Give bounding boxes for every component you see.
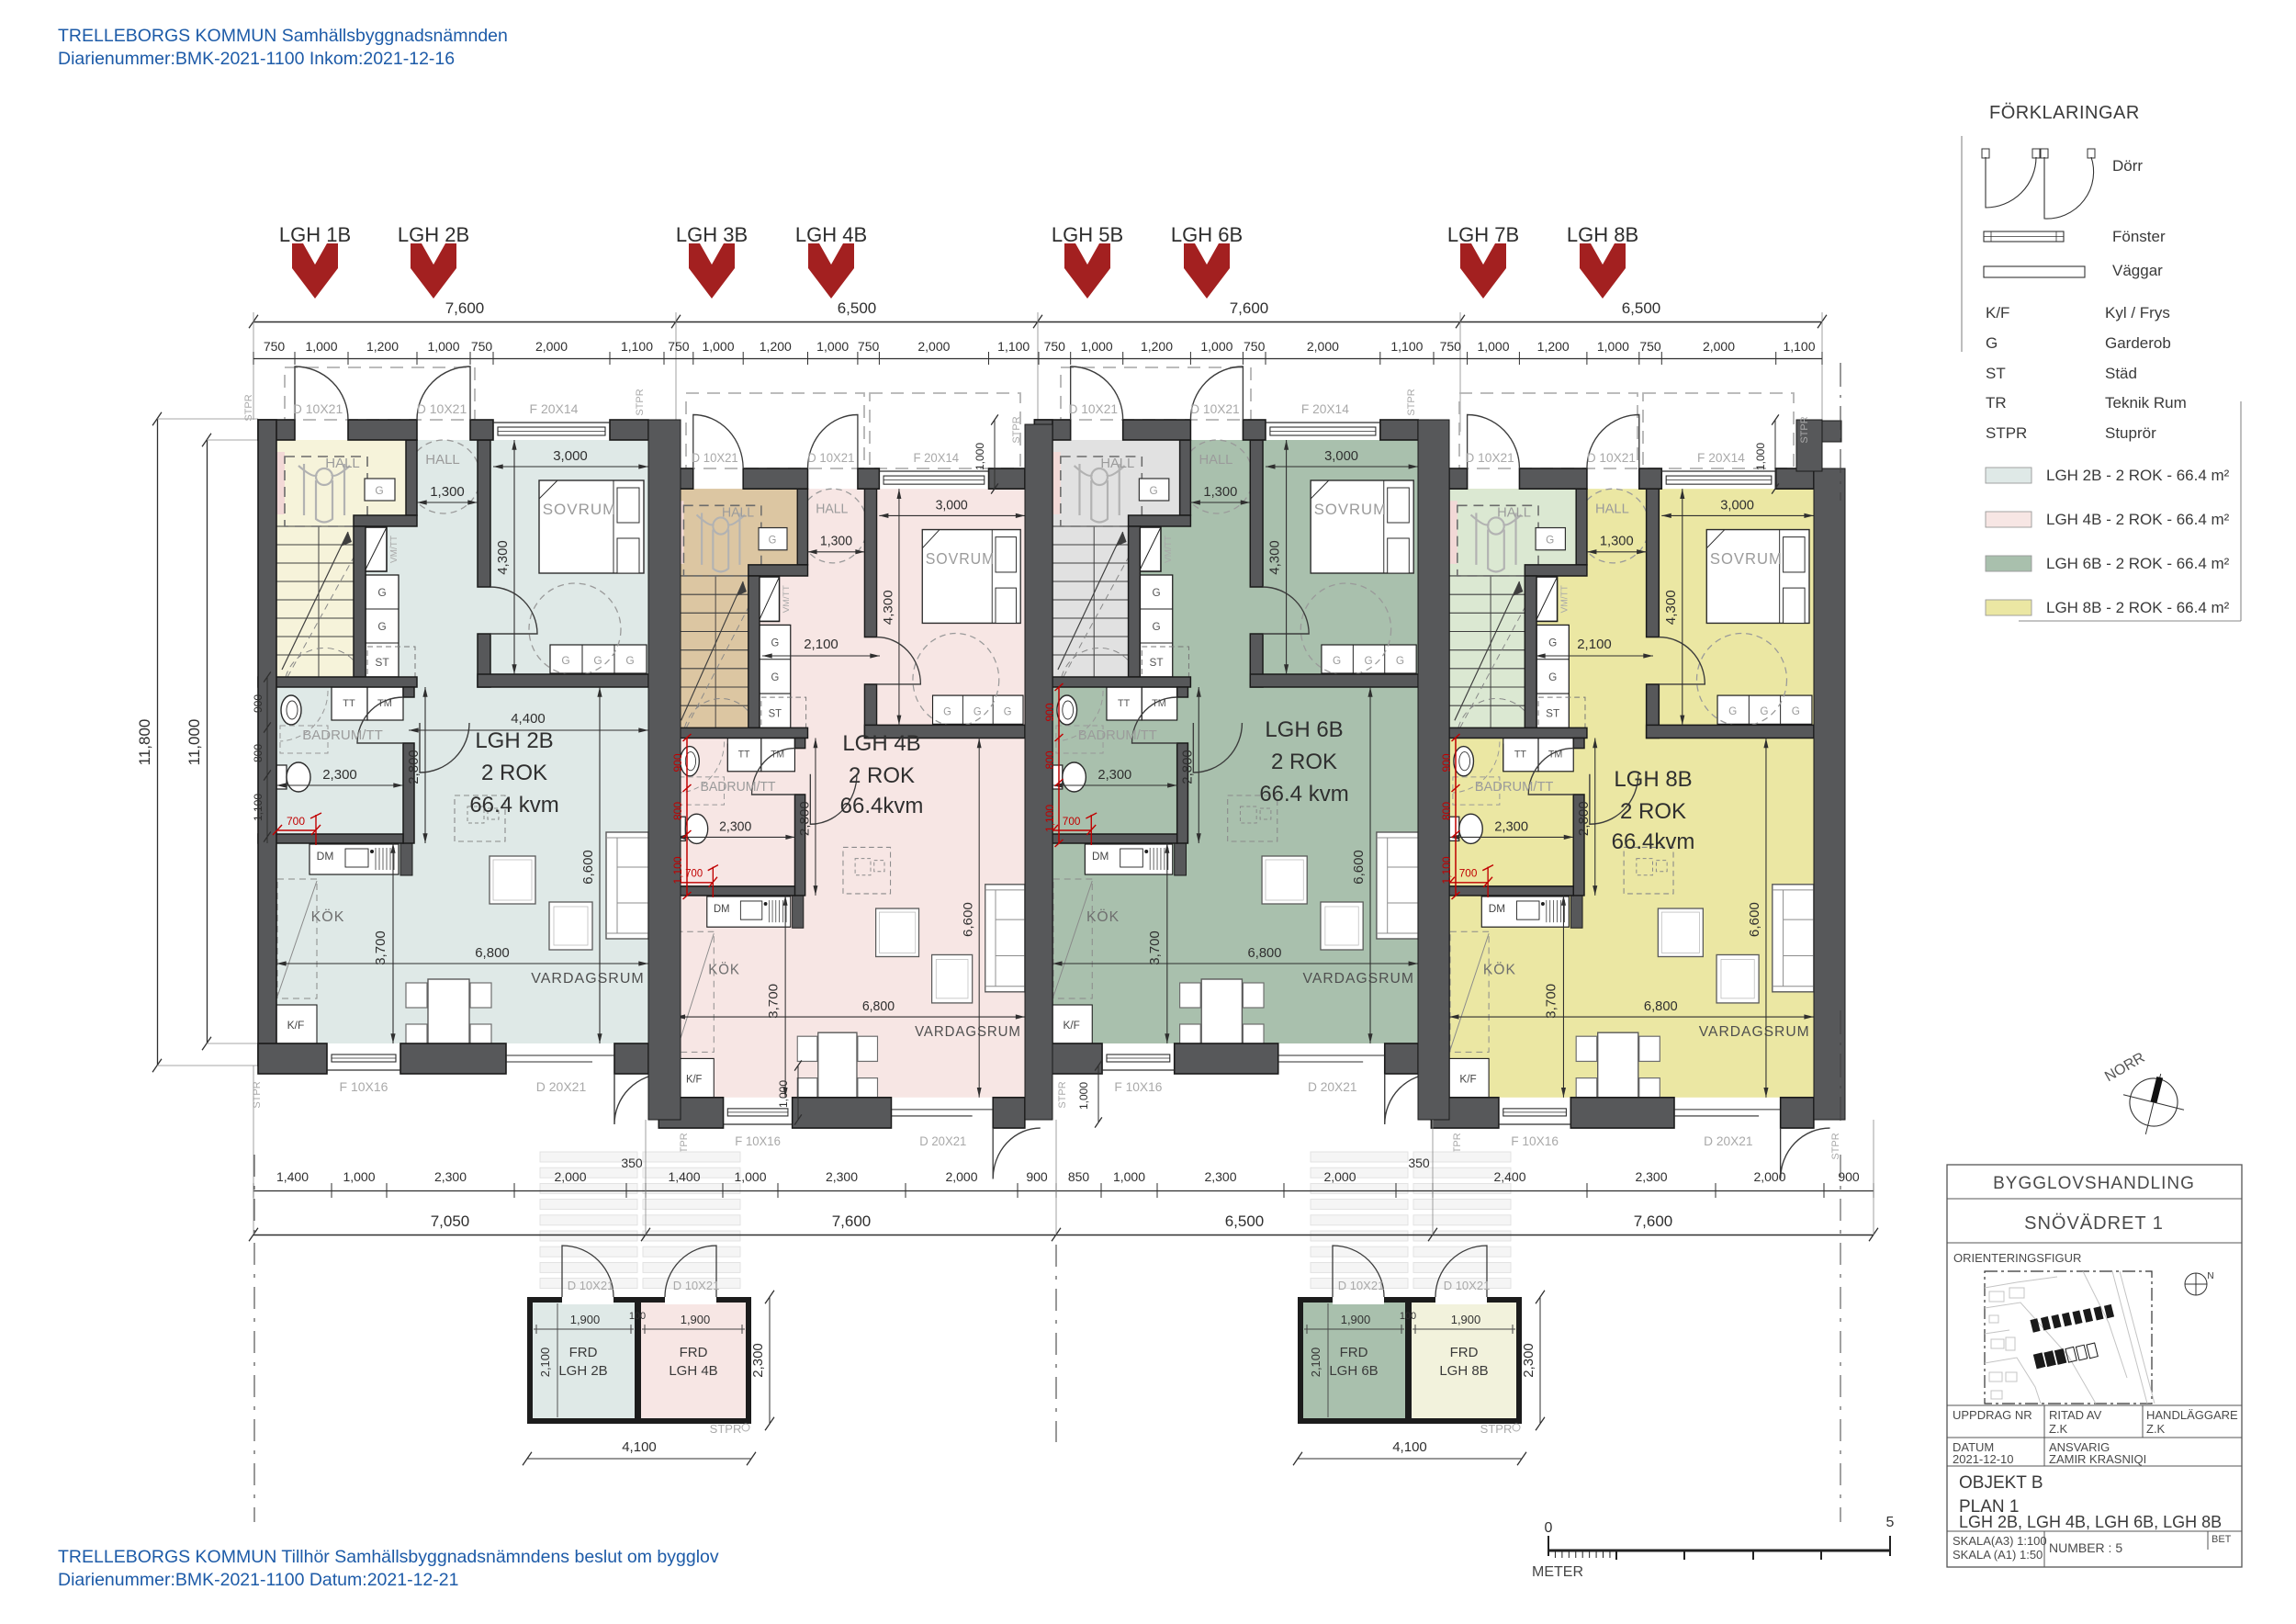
svg-text:350: 350 bbox=[1408, 1156, 1430, 1170]
svg-text:1,900: 1,900 bbox=[1451, 1313, 1481, 1326]
svg-text:2,000: 2,000 bbox=[917, 339, 950, 354]
svg-text:800: 800 bbox=[1440, 802, 1453, 820]
svg-text:FRD: FRD bbox=[680, 1345, 708, 1360]
svg-text:6,500: 6,500 bbox=[838, 299, 877, 317]
svg-text:2,100: 2,100 bbox=[538, 1348, 552, 1378]
svg-text:RITAD AV: RITAD AV bbox=[2049, 1408, 2102, 1422]
svg-text:2,000: 2,000 bbox=[945, 1169, 977, 1184]
svg-text:STPR: STPR bbox=[1799, 416, 1810, 443]
svg-text:1,200: 1,200 bbox=[1537, 339, 1570, 354]
svg-text:750: 750 bbox=[858, 339, 880, 354]
svg-text:LGH 8B - 2 ROK - 66.4 m²: LGH 8B - 2 ROK - 66.4 m² bbox=[2046, 599, 2230, 616]
svg-text:LGH 8B: LGH 8B bbox=[1439, 1363, 1488, 1379]
svg-text:LGH 2B: LGH 2B bbox=[558, 1363, 607, 1379]
svg-text:7,050: 7,050 bbox=[431, 1212, 470, 1230]
svg-text:STPR: STPR bbox=[1406, 389, 1417, 415]
svg-text:1,100: 1,100 bbox=[1783, 339, 1815, 354]
svg-text:4,100: 4,100 bbox=[1392, 1439, 1427, 1455]
svg-text:SNÖVÄDRET 1: SNÖVÄDRET 1 bbox=[2024, 1213, 2164, 1234]
svg-text:Teknik Rum: Teknik Rum bbox=[2105, 394, 2187, 412]
svg-text:7,600: 7,600 bbox=[832, 1212, 872, 1230]
svg-text:1,000: 1,000 bbox=[974, 443, 986, 470]
svg-text:Diarienummer:BMK-2021-1100 Ink: Diarienummer:BMK-2021-1100 Inkom:2021-12… bbox=[58, 49, 455, 69]
svg-text:STPR: STPR bbox=[1011, 416, 1022, 443]
svg-text:1,400: 1,400 bbox=[668, 1169, 700, 1184]
svg-text:BET: BET bbox=[2212, 1534, 2232, 1545]
svg-text:LGH 4B: LGH 4B bbox=[795, 223, 867, 246]
svg-text:900: 900 bbox=[1026, 1169, 1048, 1184]
svg-text:Stuprör: Stuprör bbox=[2105, 424, 2156, 442]
svg-text:D 10X21: D 10X21 bbox=[1338, 1279, 1385, 1292]
svg-text:7,600: 7,600 bbox=[1230, 299, 1269, 317]
svg-text:Garderob: Garderob bbox=[2105, 334, 2171, 352]
svg-text:STPR: STPR bbox=[635, 389, 646, 415]
svg-text:LGH 2B: LGH 2B bbox=[398, 223, 469, 246]
svg-text:900: 900 bbox=[1440, 753, 1453, 772]
svg-text:2,100: 2,100 bbox=[1309, 1348, 1322, 1378]
svg-text:11,800: 11,800 bbox=[136, 719, 153, 766]
svg-text:7,600: 7,600 bbox=[445, 299, 485, 317]
svg-text:350: 350 bbox=[621, 1156, 643, 1170]
svg-text:LGH 8B: LGH 8B bbox=[1567, 223, 1638, 246]
svg-text:2,000: 2,000 bbox=[554, 1169, 586, 1184]
svg-text:11,000: 11,000 bbox=[186, 719, 203, 766]
svg-text:2,000: 2,000 bbox=[1753, 1169, 1785, 1184]
svg-text:2,000: 2,000 bbox=[1703, 339, 1735, 354]
svg-text:Kyl / Frys: Kyl / Frys bbox=[2105, 304, 2170, 321]
svg-text:D 10X21: D 10X21 bbox=[673, 1279, 720, 1292]
svg-text:1,000: 1,000 bbox=[777, 1080, 790, 1108]
svg-text:1,000: 1,000 bbox=[1754, 443, 1767, 470]
svg-text:900: 900 bbox=[671, 753, 684, 772]
svg-text:750: 750 bbox=[1440, 339, 1462, 354]
svg-text:1,200: 1,200 bbox=[366, 339, 399, 354]
svg-text:LGH 4B: LGH 4B bbox=[842, 731, 920, 756]
svg-text:D 10X21: D 10X21 bbox=[568, 1279, 614, 1292]
svg-text:6,500: 6,500 bbox=[1622, 299, 1661, 317]
svg-text:LGH 3B: LGH 3B bbox=[676, 223, 748, 246]
svg-text:1,900: 1,900 bbox=[570, 1313, 601, 1326]
svg-text:LGH 6B - 2 ROK - 66.4 m²: LGH 6B - 2 ROK - 66.4 m² bbox=[2046, 555, 2230, 572]
svg-text:STPR: STPR bbox=[710, 1422, 742, 1436]
svg-text:LGH 2B - 2 ROK - 66.4 m²: LGH 2B - 2 ROK - 66.4 m² bbox=[2046, 467, 2230, 484]
svg-text:1,000: 1,000 bbox=[734, 1169, 766, 1184]
svg-text:METER: METER bbox=[1532, 1564, 1583, 1580]
svg-text:4,400: 4,400 bbox=[511, 711, 546, 727]
svg-text:2,100: 2,100 bbox=[804, 637, 838, 652]
svg-text:0: 0 bbox=[1545, 1520, 1553, 1536]
svg-text:STPR: STPR bbox=[1830, 1133, 1841, 1159]
svg-text:2 ROK: 2 ROK bbox=[1271, 750, 1337, 774]
svg-text:Dörr: Dörr bbox=[2112, 157, 2143, 175]
svg-text:LGH 6B: LGH 6B bbox=[1171, 223, 1243, 246]
svg-text:STPR: STPR bbox=[1480, 1422, 1513, 1436]
svg-text:1,100: 1,100 bbox=[252, 794, 264, 821]
svg-text:1,000: 1,000 bbox=[427, 339, 459, 354]
svg-text:800: 800 bbox=[671, 802, 684, 820]
svg-text:FÖRKLARINGAR: FÖRKLARINGAR bbox=[1989, 103, 2140, 123]
svg-text:66.4kvm: 66.4kvm bbox=[840, 794, 924, 818]
svg-text:1,100: 1,100 bbox=[1043, 805, 1056, 832]
svg-text:2,000: 2,000 bbox=[535, 339, 568, 354]
svg-text:1,100: 1,100 bbox=[1390, 339, 1423, 354]
svg-text:LGH 6B: LGH 6B bbox=[1329, 1363, 1378, 1379]
svg-text:4,100: 4,100 bbox=[622, 1439, 657, 1455]
svg-text:2,000: 2,000 bbox=[1307, 339, 1339, 354]
svg-text:NUMBER : 5: NUMBER : 5 bbox=[2049, 1540, 2122, 1555]
svg-text:1,100: 1,100 bbox=[671, 856, 684, 884]
svg-text:ZAMIR KRASNIQI: ZAMIR KRASNIQI bbox=[2049, 1452, 2146, 1466]
svg-text:1,200: 1,200 bbox=[1141, 339, 1173, 354]
svg-text:LGH 5B: LGH 5B bbox=[1052, 223, 1123, 246]
svg-text:Z.K: Z.K bbox=[2146, 1422, 2166, 1436]
svg-text:FRD: FRD bbox=[1340, 1345, 1368, 1360]
svg-text:1,000: 1,000 bbox=[1597, 339, 1629, 354]
svg-text:LGH 1B: LGH 1B bbox=[279, 223, 351, 246]
svg-text:TR: TR bbox=[1986, 394, 2007, 412]
svg-text:K/F: K/F bbox=[1986, 304, 2009, 321]
svg-text:5: 5 bbox=[1886, 1515, 1895, 1530]
svg-text:750: 750 bbox=[1244, 339, 1266, 354]
svg-text:1,100: 1,100 bbox=[997, 339, 1030, 354]
svg-text:100: 100 bbox=[629, 1311, 646, 1322]
svg-text:1,900: 1,900 bbox=[681, 1313, 711, 1326]
svg-text:UPPDRAG NR: UPPDRAG NR bbox=[1953, 1408, 2032, 1422]
svg-text:1,000: 1,000 bbox=[1200, 339, 1232, 354]
svg-text:850: 850 bbox=[1068, 1169, 1090, 1184]
svg-text:2,300: 2,300 bbox=[1204, 1169, 1236, 1184]
svg-text:LGH 8B: LGH 8B bbox=[1614, 767, 1692, 792]
svg-text:OBJEKT B: OBJEKT B bbox=[1959, 1473, 2043, 1493]
svg-text:LGH 2B, LGH 4B, LGH 6B, LGH 8B: LGH 2B, LGH 4B, LGH 6B, LGH 8B bbox=[1959, 1513, 2222, 1531]
svg-text:Diarienummer:BMK-2021-1100 Dat: Diarienummer:BMK-2021-1100 Datum:2021-12… bbox=[58, 1570, 458, 1590]
svg-text:2 ROK: 2 ROK bbox=[1620, 799, 1686, 824]
svg-text:Z.K: Z.K bbox=[2049, 1422, 2068, 1436]
svg-text:1,000: 1,000 bbox=[1081, 339, 1113, 354]
svg-text:BYGGLOVSHANDLING: BYGGLOVSHANDLING bbox=[1993, 1174, 2195, 1193]
svg-text:FRD: FRD bbox=[569, 1345, 598, 1360]
svg-text:LGH 4B: LGH 4B bbox=[669, 1363, 717, 1379]
svg-text:66.4 kvm: 66.4 kvm bbox=[469, 793, 558, 818]
svg-text:900: 900 bbox=[1838, 1169, 1860, 1184]
svg-text:ST: ST bbox=[1986, 365, 2006, 382]
svg-text:2 ROK: 2 ROK bbox=[481, 761, 547, 785]
svg-text:LGH 7B: LGH 7B bbox=[1447, 223, 1519, 246]
svg-text:TRELLEBORGS KOMMUN Tillhör Sam: TRELLEBORGS KOMMUN Tillhör Samhällsbyggn… bbox=[58, 1547, 719, 1567]
svg-text:1,000: 1,000 bbox=[702, 339, 734, 354]
svg-text:2021-12-10: 2021-12-10 bbox=[1953, 1452, 2014, 1466]
svg-text:800: 800 bbox=[252, 744, 264, 762]
svg-text:100: 100 bbox=[1400, 1311, 1416, 1322]
svg-text:750: 750 bbox=[264, 339, 286, 354]
svg-text:Väggar: Väggar bbox=[2112, 262, 2163, 279]
svg-text:2,400: 2,400 bbox=[1493, 1169, 1525, 1184]
svg-text:Fönster: Fönster bbox=[2112, 228, 2166, 245]
svg-text:1,000: 1,000 bbox=[305, 339, 337, 354]
svg-text:7,600: 7,600 bbox=[1634, 1212, 1673, 1230]
svg-text:750: 750 bbox=[1044, 339, 1066, 354]
svg-text:2,300: 2,300 bbox=[1635, 1169, 1667, 1184]
svg-text:1,900: 1,900 bbox=[1341, 1313, 1371, 1326]
svg-text:SKALA(A3) 1:100: SKALA(A3) 1:100 bbox=[1953, 1534, 2047, 1548]
svg-text:900: 900 bbox=[252, 694, 264, 713]
svg-text:1,100: 1,100 bbox=[1440, 856, 1453, 884]
svg-text:TRELLEBORGS KOMMUN Samhällsbyg: TRELLEBORGS KOMMUN Samhällsbyggnadsnämnd… bbox=[58, 26, 508, 46]
svg-text:D 10X21: D 10X21 bbox=[1444, 1279, 1491, 1292]
svg-text:1,000: 1,000 bbox=[816, 339, 849, 354]
svg-text:6,500: 6,500 bbox=[1225, 1212, 1265, 1230]
svg-text:N: N bbox=[2207, 1271, 2213, 1281]
svg-text:66.4kvm: 66.4kvm bbox=[1612, 829, 1695, 854]
svg-text:ORIENTERINGSFIGUR: ORIENTERINGSFIGUR bbox=[1953, 1251, 2081, 1265]
svg-text:1,400: 1,400 bbox=[276, 1169, 309, 1184]
svg-text:2,300: 2,300 bbox=[434, 1169, 467, 1184]
svg-text:900: 900 bbox=[1043, 703, 1056, 721]
svg-text:1,200: 1,200 bbox=[760, 339, 792, 354]
svg-text:2,300: 2,300 bbox=[750, 1343, 766, 1378]
svg-text:800: 800 bbox=[1043, 750, 1056, 769]
svg-text:750: 750 bbox=[471, 339, 493, 354]
svg-text:1,000: 1,000 bbox=[1477, 339, 1509, 354]
svg-text:STPR: STPR bbox=[243, 394, 254, 421]
svg-text:1,000: 1,000 bbox=[1113, 1169, 1145, 1184]
svg-text:SKALA (A1) 1:50: SKALA (A1) 1:50 bbox=[1953, 1548, 2043, 1562]
svg-text:FRD: FRD bbox=[1450, 1345, 1479, 1360]
svg-text:LGH 4B - 2 ROK - 66.4 m²: LGH 4B - 2 ROK - 66.4 m² bbox=[2046, 511, 2230, 528]
svg-text:2 ROK: 2 ROK bbox=[849, 763, 915, 788]
svg-text:750: 750 bbox=[668, 339, 690, 354]
svg-text:66.4 kvm: 66.4 kvm bbox=[1259, 782, 1348, 806]
svg-text:1,100: 1,100 bbox=[621, 339, 653, 354]
svg-text:LGH 6B: LGH 6B bbox=[1265, 717, 1343, 742]
svg-text:2,300: 2,300 bbox=[1521, 1343, 1536, 1378]
svg-text:1,000: 1,000 bbox=[1077, 1082, 1090, 1110]
svg-text:2,300: 2,300 bbox=[826, 1169, 858, 1184]
svg-text:Städ: Städ bbox=[2105, 365, 2137, 382]
svg-text:HANDLÄGGARE: HANDLÄGGARE bbox=[2146, 1408, 2238, 1422]
svg-text:STPR: STPR bbox=[1986, 424, 2027, 442]
svg-text:2,100: 2,100 bbox=[1577, 637, 1612, 652]
svg-text:2,000: 2,000 bbox=[1323, 1169, 1356, 1184]
svg-text:LGH 2B: LGH 2B bbox=[475, 728, 553, 753]
svg-text:G: G bbox=[1986, 334, 1998, 352]
svg-text:750: 750 bbox=[1639, 339, 1661, 354]
svg-text:1,000: 1,000 bbox=[343, 1169, 375, 1184]
svg-text:STPR: STPR bbox=[1057, 1081, 1068, 1108]
